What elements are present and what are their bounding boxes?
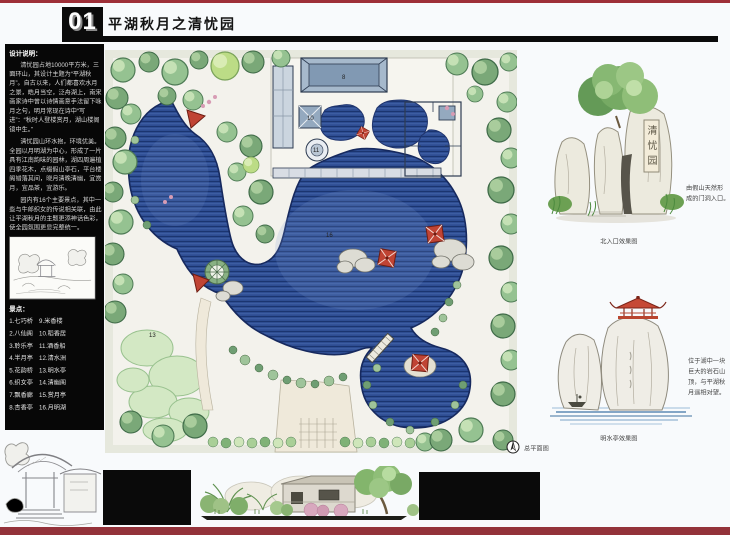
legend-item: 4.半月亭 <box>9 353 33 365</box>
design-notes-title: 设计说明： <box>9 49 101 58</box>
legend-item: 8.杏香亭 <box>9 402 33 414</box>
pavilion-sketch-caption: 明水亭效果图 <box>546 433 692 442</box>
design-notes-paragraph: 清忧园山环水抱，环境优美。全园以月明湖为中心，形成了一片具有江南韵味的园林，湖四… <box>9 137 101 192</box>
site-plan: 8 10 11 16 13 <box>105 50 517 453</box>
legend-item: 5.花韵桥 <box>9 365 33 377</box>
plan-label: 16 <box>326 233 333 239</box>
plan-caption: 总平面图 <box>524 443 567 452</box>
ground-line <box>201 516 407 520</box>
legend-item: 3.聆乐亭 <box>9 340 33 352</box>
legend-item: 9.米香楼 <box>39 316 66 328</box>
compass-icon <box>506 440 520 454</box>
pavilion-note: 位于湖中一块 巨大的岩石山 顶，与平湖秋 月遥相对望。 <box>688 356 730 398</box>
bottom-black-panel-left <box>103 470 191 525</box>
legend-item: 12.清水洲 <box>39 353 66 365</box>
legend-item: 6.织女亭 <box>9 377 33 389</box>
entrance-sketch: 清忧园 <box>546 62 692 232</box>
entrance-note: 由假山天然形 成的门洞入口。 <box>686 183 730 204</box>
sidebar-sketch-thumbnail <box>9 236 95 299</box>
gate-pencil-sketch <box>0 430 103 526</box>
plan-label: 13 <box>149 333 156 339</box>
rock-pavilion <box>610 296 666 319</box>
legend-item: 14.清幽阁 <box>39 377 66 389</box>
legend-item: 11.酒香船 <box>39 340 66 352</box>
page-title: 平湖秋月之清忧园 <box>108 14 236 34</box>
design-notes-paragraph: 清忧园占地10000平方米，三面环山，其设计主题为“平湖秋月”。自古以来，人们都… <box>9 61 101 135</box>
plan-label: 11 <box>313 148 320 154</box>
plaque-text: 清忧园 <box>648 124 658 167</box>
legend-item: 1.七巧桥 <box>9 316 33 328</box>
legend-column-left: 1.七巧桥 2.八仙阁 3.聆乐亭 4.半月亭 5.花韵桥 6.织女亭 7.飘香… <box>9 316 33 414</box>
entrance-note-line: 由假山天然形 <box>686 183 730 194</box>
legend-item: 16.月明湖 <box>39 402 66 414</box>
legend-item: 2.八仙阁 <box>9 328 33 340</box>
legend-title: 景点： <box>9 304 101 313</box>
legend-item: 13.明水亭 <box>39 365 66 377</box>
entrance-sketch-caption: 北入口效果图 <box>546 236 692 245</box>
garden-pencil-sketch <box>10 237 95 298</box>
pavilion-rock-sketch <box>546 296 696 430</box>
design-notes-sidebar: 设计说明： 清忧园占地10000平方米，三面环山，其设计主题为“平湖秋月”。自古… <box>5 44 104 430</box>
header-rule <box>62 36 718 42</box>
bottom-black-panel-right <box>419 472 540 520</box>
pavilion-note-line: 月遥相对望。 <box>688 388 730 399</box>
bottom-accent-band <box>0 527 730 535</box>
top-accent-line <box>0 0 730 3</box>
pavilion-note-line: 巨大的岩石山 <box>688 367 730 378</box>
legend-list: 1.七巧桥 2.八仙阁 3.聆乐亭 4.半月亭 5.花韵桥 6.织女亭 7.飘香… <box>9 316 101 414</box>
entrance-tree <box>578 62 658 116</box>
page-number: 01 <box>68 8 97 35</box>
page-number-box: 01 <box>62 7 103 36</box>
pavilion-note-line: 位于湖中一块 <box>688 356 730 367</box>
legend-item: 10.稻香居 <box>39 328 66 340</box>
legend-item: 7.飘香廊 <box>9 390 33 402</box>
legend-item: 15.赏月亭 <box>39 390 66 402</box>
legend-column-right: 9.米香楼 10.稻香居 11.酒香船 12.清水洲 13.明水亭 14.清幽阁… <box>39 316 66 414</box>
entrance-note-line: 成的门洞入口。 <box>686 194 730 205</box>
presentation-board: 01 平湖秋月之清忧园 设计说明： 清忧园占地10000平方米，三面环山，其设计… <box>0 0 730 535</box>
elevation-drawing <box>191 466 421 524</box>
plan-label: 10 <box>307 116 314 122</box>
pavilion-note-line: 顶，与平湖秋 <box>688 377 730 388</box>
design-notes-paragraph: 园内有16个主要景点，其中一些与牛郎织女的传说相关联，由此让平湖秋月的主题更添神… <box>9 196 101 233</box>
